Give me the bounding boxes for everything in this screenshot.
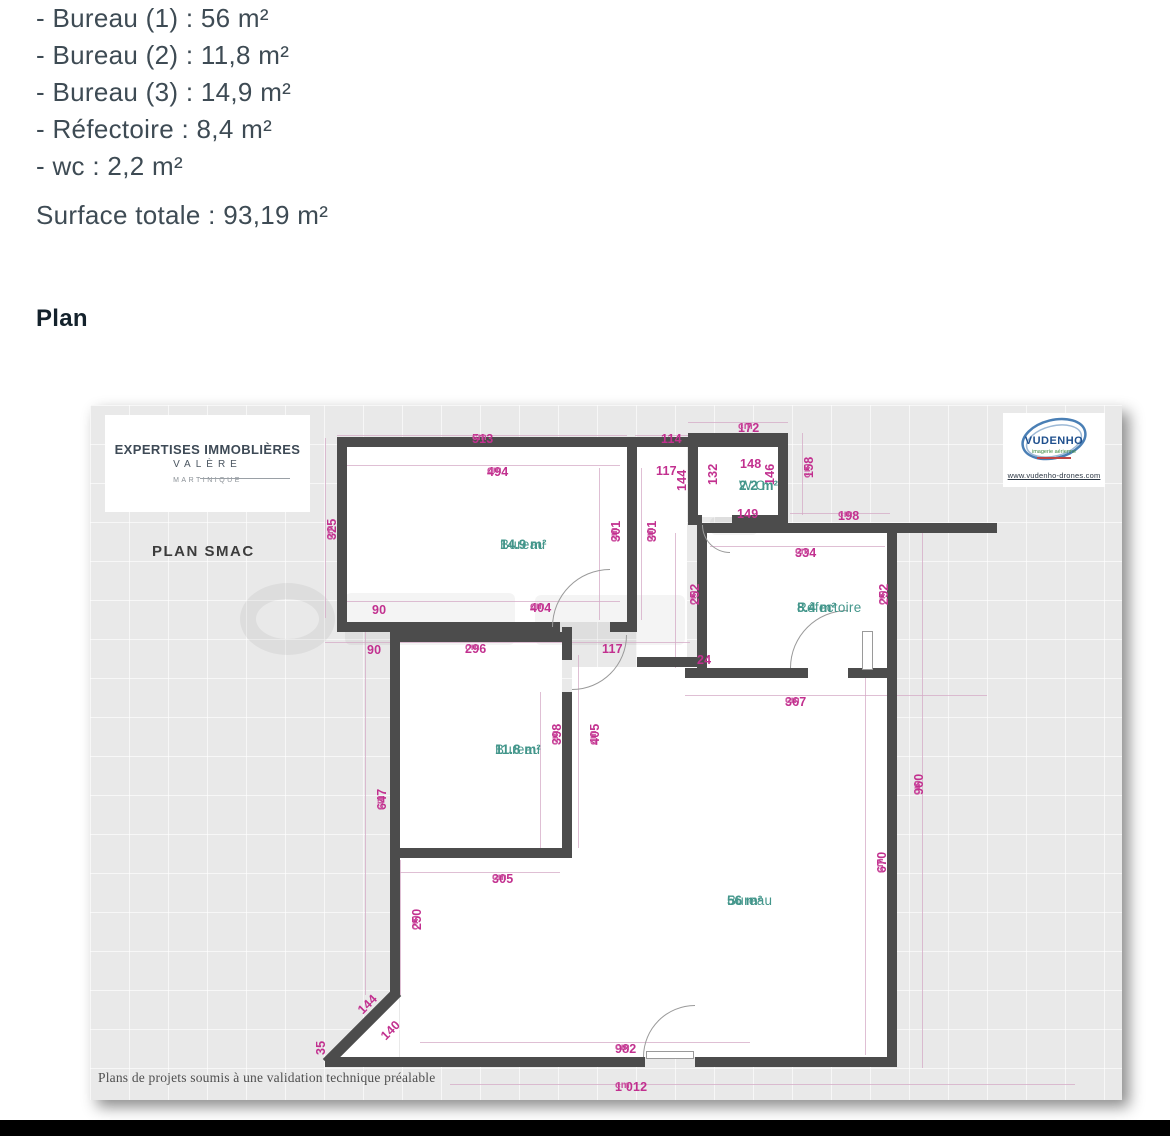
- page: { "document": { "area_list": [ "- Bureau…: [0, 0, 1170, 1136]
- agency-rule: [200, 478, 290, 479]
- dimension-line: [540, 692, 541, 848]
- wall-segment: [778, 433, 788, 525]
- dimension-line: [390, 872, 560, 873]
- wall-segment: [390, 848, 572, 858]
- area-list: - Bureau (1) : 56 m²- Bureau (2) : 11,8 …: [36, 0, 291, 185]
- area-list-item: - Réfectoire : 8,4 m²: [36, 111, 291, 148]
- floor-plan-image: EXPERTISES IMMOBLIÈRES VALÈRE MARTINIQUE…: [90, 405, 1122, 1100]
- dimension-line: [865, 660, 866, 1055]
- area-list-item: - Bureau (1) : 56 m²: [36, 0, 291, 37]
- bottom-black-bar: [0, 1120, 1170, 1136]
- dimension-line: [420, 1042, 750, 1043]
- dimension-line: [365, 625, 366, 995]
- vendor-url: www.vudenho-drones.com: [1003, 471, 1105, 480]
- agency-subname: VALÈRE: [105, 459, 310, 470]
- room-floor: [572, 667, 887, 1057]
- room-floor: [400, 858, 580, 1057]
- dimension-line: [345, 465, 620, 466]
- vendor-tagline: imagerie aérienne: [1003, 449, 1105, 455]
- wall-segment: [390, 622, 400, 995]
- wall-segment: [697, 523, 997, 533]
- wall-segment: [562, 692, 572, 848]
- dimension-line: [685, 695, 987, 696]
- area-list-item: - Bureau (2) : 11,8 m²: [36, 37, 291, 74]
- dimension-line: [400, 860, 401, 995]
- wall-segment: [562, 627, 572, 660]
- vendor-logo: VUDENHO imagerie aérienne www.vudenho-dr…: [1003, 413, 1105, 487]
- surface-total: Surface totale : 93,19 m²: [36, 200, 328, 231]
- area-list-item: - Bureau (3) : 14,9 m²: [36, 74, 291, 111]
- watermark-shape: [240, 583, 335, 655]
- wall-segment: [337, 622, 560, 632]
- wall-segment: [325, 1057, 645, 1067]
- dimension-line: [641, 468, 642, 620]
- wall-segment: [627, 447, 637, 632]
- agency-logo: EXPERTISES IMMOBLIÈRES VALÈRE MARTINIQUE: [105, 415, 310, 512]
- agency-name: EXPERTISES IMMOBLIÈRES: [105, 442, 310, 457]
- area-list-item: - wc : 2,2 m²: [36, 148, 291, 185]
- plan-footer-note: Plans de projets soumis à une validation…: [98, 1070, 435, 1086]
- vendor-name: VUDENHO: [1003, 435, 1105, 447]
- door-leaf: [862, 631, 873, 670]
- wall-segment: [695, 1057, 887, 1067]
- plan-title: PLAN SMAC: [152, 543, 255, 560]
- dimension-line: [450, 1084, 1075, 1085]
- dimension-line: [922, 523, 923, 1068]
- wall-segment: [688, 433, 698, 525]
- dimension-line: [675, 533, 676, 668]
- wall-segment: [390, 632, 562, 642]
- wall-segment: [685, 668, 808, 678]
- vendor-red-rule: [1037, 457, 1071, 459]
- plan-heading: Plan: [36, 305, 88, 333]
- door-leaf: [646, 1051, 694, 1059]
